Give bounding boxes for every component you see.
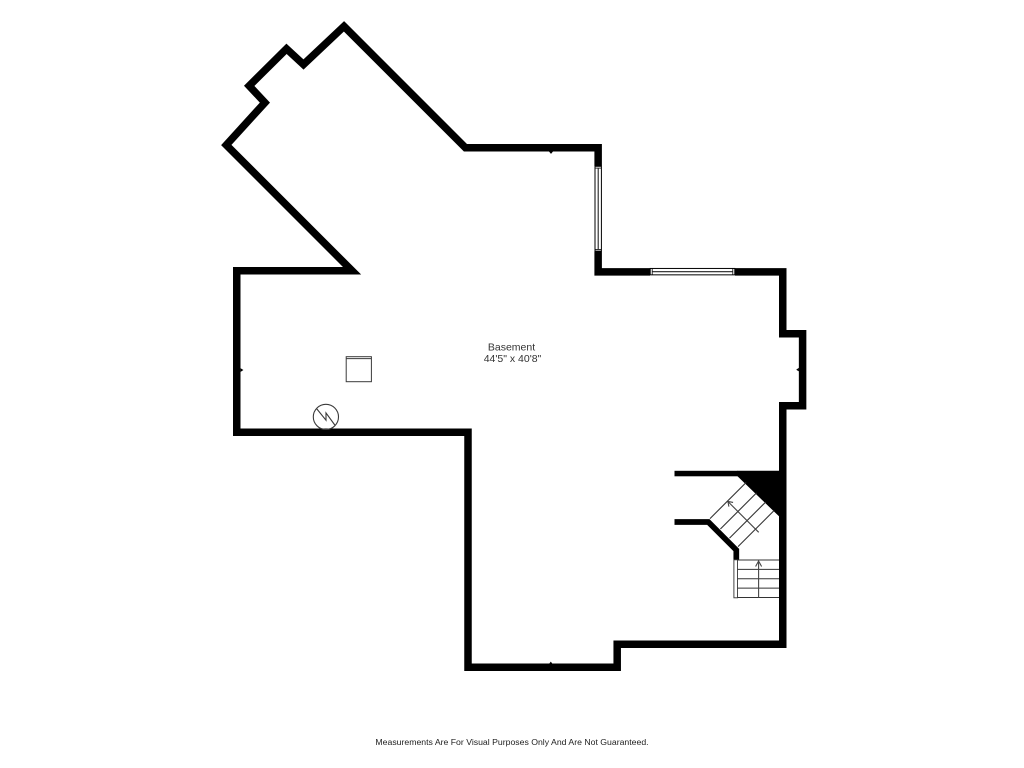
svg-text:Measurements Are For Visual Pu: Measurements Are For Visual Purposes Onl…: [375, 737, 648, 747]
svg-text:44'5" x 40'8": 44'5" x 40'8": [484, 353, 542, 365]
svg-text:Basement: Basement: [488, 342, 535, 354]
